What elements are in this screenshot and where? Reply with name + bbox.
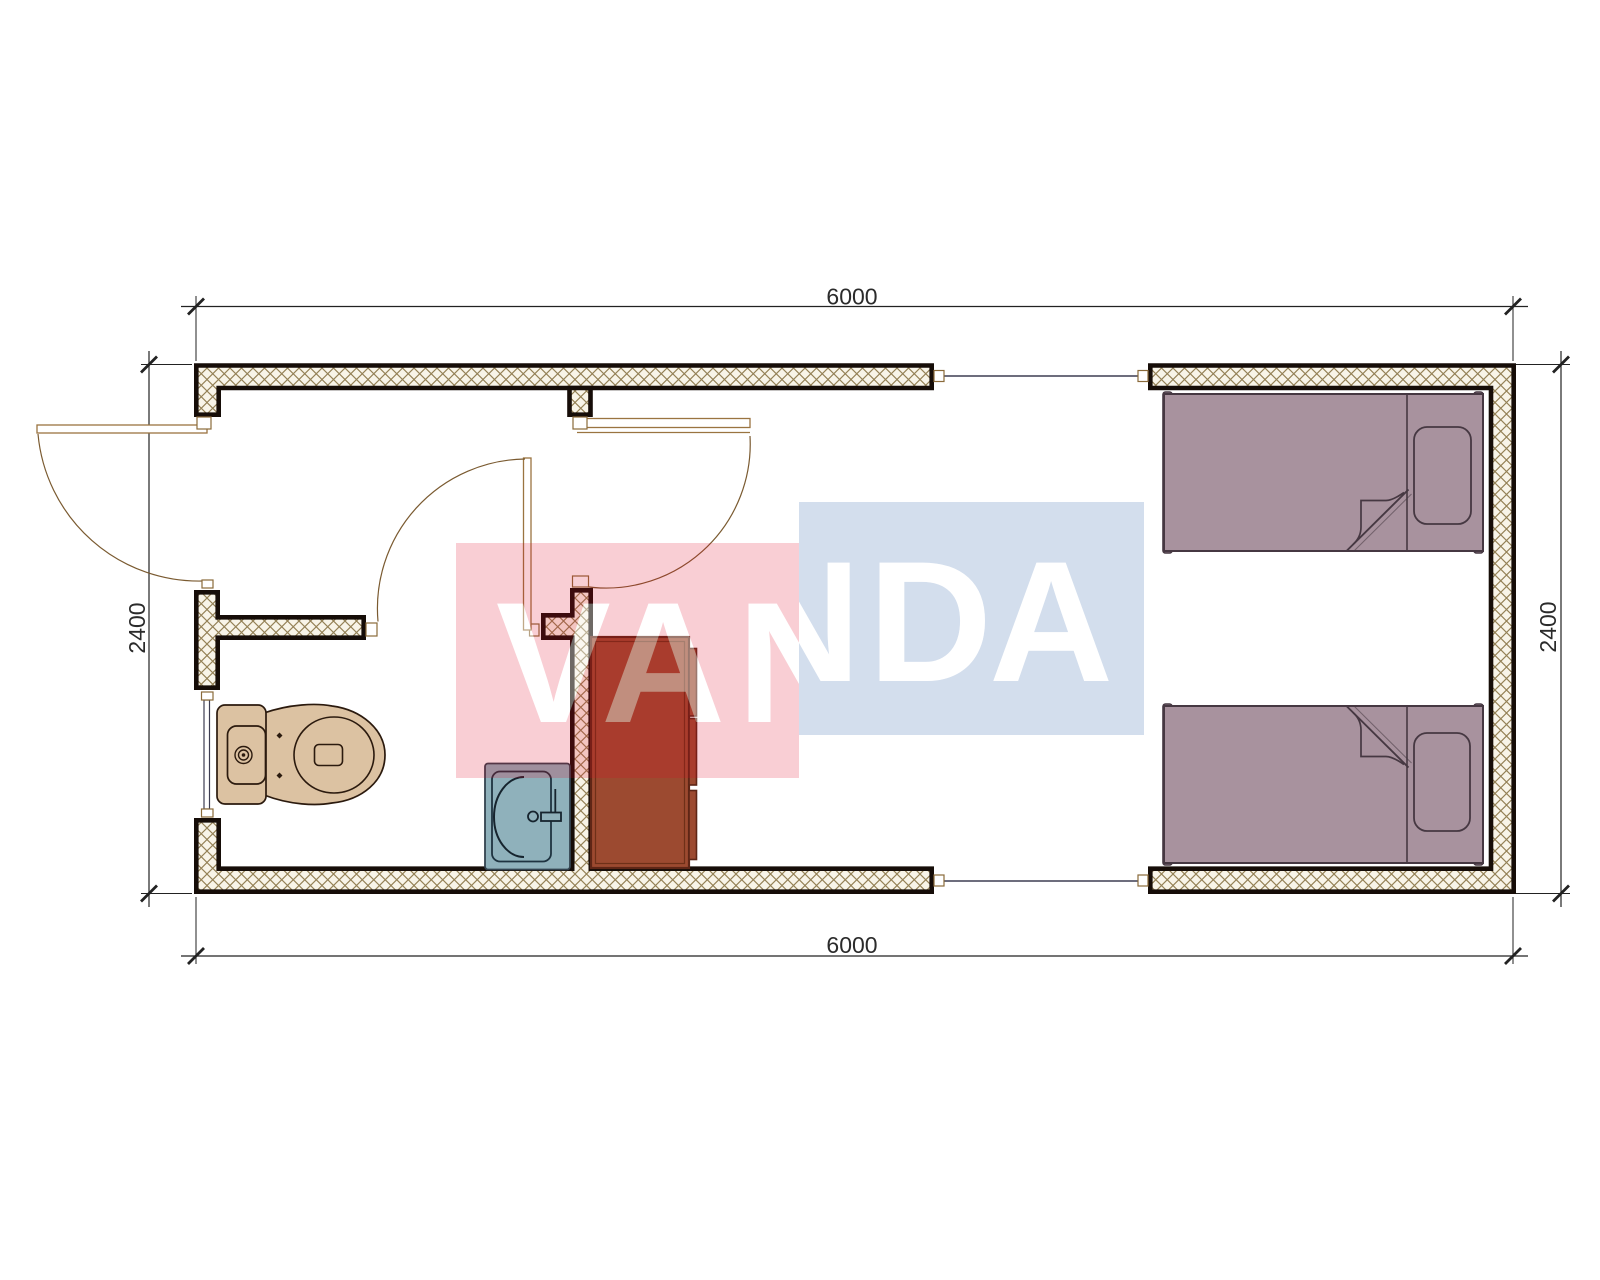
svg-text:2400: 2400 — [124, 602, 150, 653]
svg-text:6000: 6000 — [826, 932, 877, 958]
svg-text:2400: 2400 — [1535, 601, 1561, 652]
svg-text:6000: 6000 — [826, 284, 877, 310]
